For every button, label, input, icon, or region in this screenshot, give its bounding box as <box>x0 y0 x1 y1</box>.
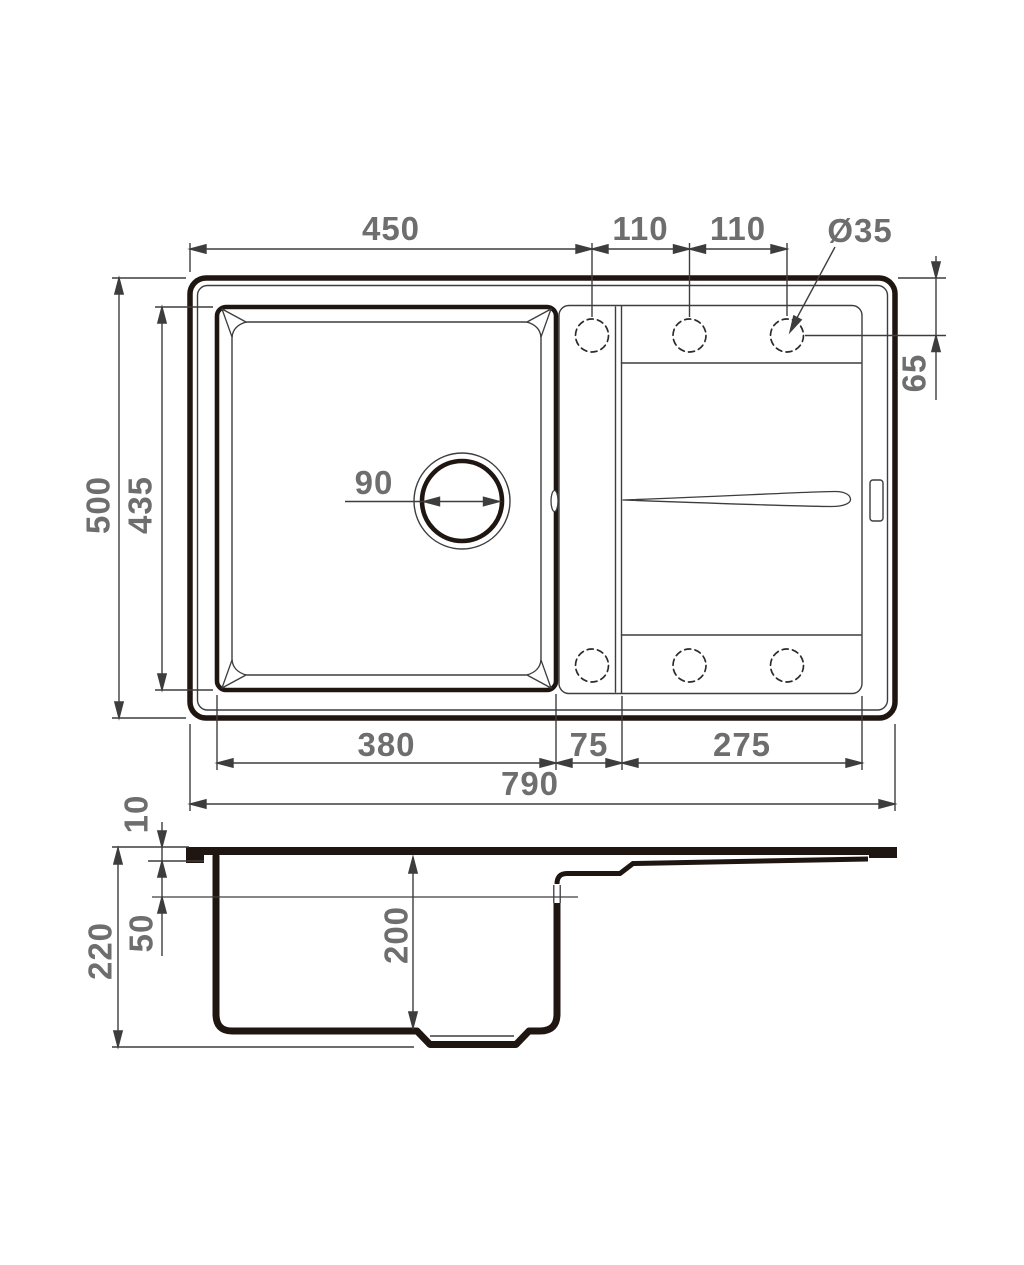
dim-label-435: 435 <box>122 476 159 534</box>
section-right-lip <box>869 847 897 858</box>
dim-label-790: 790 <box>501 765 559 802</box>
dim-label-50: 50 <box>123 914 160 953</box>
overflow-notch <box>551 491 558 512</box>
section-top-slab <box>186 847 897 855</box>
drainboard-tab <box>870 480 883 521</box>
top-view <box>190 278 895 718</box>
dim-label-110b: 110 <box>710 210 766 247</box>
technical-drawing-page: 450 110 110 Ø35 65 500 435 90 380 75 275… <box>0 0 1024 1265</box>
dim-label-65: 65 <box>896 354 933 393</box>
dim-label-10: 10 <box>118 795 155 834</box>
dim-label-110a: 110 <box>612 210 668 247</box>
dim-label-275: 275 <box>713 726 771 763</box>
dim-label-380: 380 <box>357 726 415 763</box>
dim-label-500: 500 <box>80 476 117 534</box>
dim-label-hole-dia: Ø35 <box>827 212 892 249</box>
dim-label-90: 90 <box>355 464 394 501</box>
sink-drawing-svg: 450 110 110 Ø35 65 500 435 90 380 75 275… <box>0 0 1024 1265</box>
dim-label-450: 450 <box>362 210 420 247</box>
section-drainboard-profile <box>557 859 868 884</box>
dim-label-75: 75 <box>570 726 609 763</box>
side-section-view <box>152 847 897 1045</box>
section-wall-break <box>549 885 565 903</box>
dim-label-200: 200 <box>378 906 415 964</box>
dim-label-220: 220 <box>82 922 119 980</box>
